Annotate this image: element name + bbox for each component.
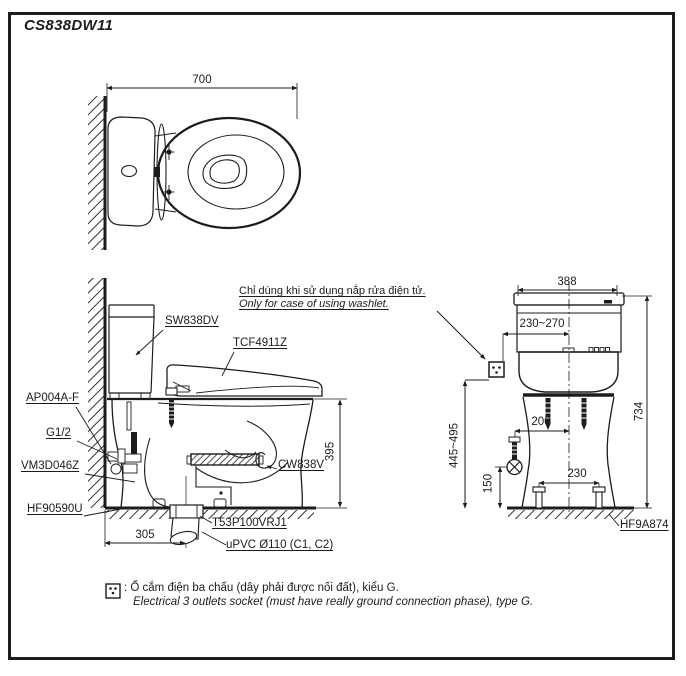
- dim-700: 700: [172, 74, 232, 87]
- washlet-front: [519, 352, 618, 392]
- dim-734: 734: [634, 382, 647, 442]
- water-surface-inner: [210, 160, 239, 183]
- label-tank-sw838dv: SW838DV: [165, 315, 219, 328]
- bowl-front-profile: [301, 400, 313, 508]
- label-bolt-cap-hf9a874: HF9A874: [620, 519, 669, 532]
- washlet-note-en: Only for case of using washlet.: [239, 298, 389, 311]
- bowl-outline-top: [158, 118, 300, 228]
- seat-bolt-nut: [166, 388, 177, 395]
- label-stop-valve-vm3d046z: VM3D046Z: [21, 460, 79, 473]
- socket-icon: [489, 362, 504, 377]
- dim-230-270: 230~270: [512, 318, 572, 331]
- wall-hatch-side-view: [88, 278, 105, 508]
- top-view-drawing: [88, 83, 300, 250]
- pedestal-right-edge: [607, 397, 615, 508]
- label-washlet-tcf4911z: TCF4911Z: [233, 337, 287, 350]
- label-thread-g12: G1/2: [46, 427, 71, 440]
- dim-395: 395: [325, 422, 338, 482]
- flush-button: [122, 166, 137, 177]
- pedestal-left-edge: [522, 397, 530, 508]
- washlet-note-leader: [437, 311, 485, 359]
- stop-valve-icon: [507, 437, 522, 475]
- seat-opening: [188, 135, 284, 209]
- label-drain-joint-t53p100vrj1: T53P100VRJ1: [212, 517, 287, 530]
- wall-hatch-top-view: [88, 96, 105, 250]
- label-supply-hose-ap004a-f: AP004A-F: [26, 392, 79, 405]
- floor-hatch-front: [508, 510, 634, 519]
- drawing-sheet: CS838DW11: [0, 0, 686, 676]
- dim-388: 388: [537, 276, 597, 289]
- dim-305: 305: [115, 529, 175, 542]
- dim-230: 230: [547, 468, 607, 481]
- dim-200: 200: [511, 416, 571, 429]
- dim-445-495: 445~495: [449, 416, 462, 476]
- legend-text-vi: : Ổ cắm điện ba chấu (dây phải được nối …: [124, 582, 399, 595]
- tank-side-view: [109, 305, 154, 399]
- legend-text-en: Electrical 3 outlets socket (must have r…: [133, 596, 533, 609]
- washlet-note-vi: Chỉ dùng khi sử dụng nắp rửa điện tử.: [239, 285, 426, 298]
- label-drain-pipe-upvc: uPVC Ø110 (C1, C2): [226, 539, 333, 552]
- technical-drawing: [0, 0, 686, 676]
- tank-top-view: [108, 117, 155, 226]
- socket-legend-icon: [106, 584, 120, 598]
- label-bowl-cw838v: CW838V: [278, 459, 324, 472]
- label-wax-ring-hf90590u: HF90590U: [27, 503, 83, 516]
- washlet-side-view: [167, 365, 322, 396]
- dim-150: 150: [483, 454, 496, 514]
- flush-valve-flange: [191, 454, 259, 465]
